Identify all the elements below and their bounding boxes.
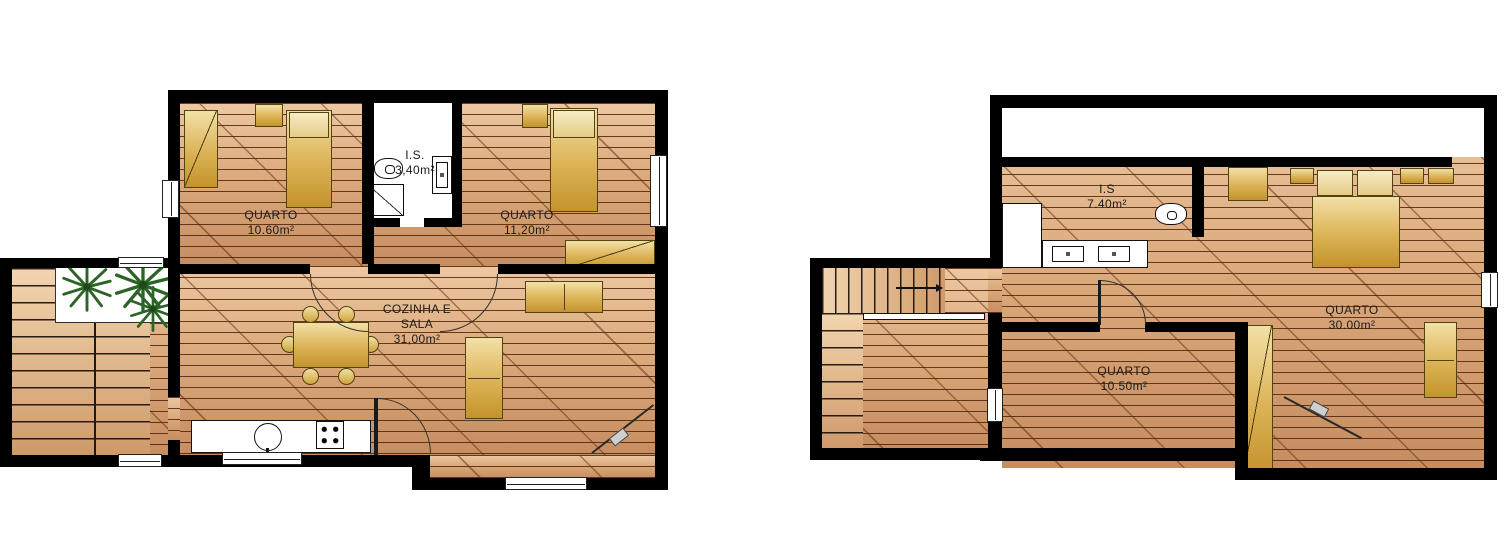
window [987, 388, 1003, 422]
wc-icon [1155, 203, 1187, 225]
extension-floor [420, 455, 656, 478]
window [162, 180, 179, 218]
pillow-icon [1317, 170, 1353, 196]
wall [368, 264, 440, 274]
room-area: 30.00m² [1325, 318, 1378, 333]
wall [810, 258, 990, 268]
sofa-icon [1424, 322, 1457, 398]
room-area: 10.60m² [244, 223, 297, 238]
room-name: QUARTO [244, 208, 297, 223]
cabinet-icon [1428, 168, 1454, 184]
wall [374, 218, 400, 227]
room-label-quarto-small: QUARTO 10.50m² [1097, 364, 1150, 394]
room-area: 11,20m² [500, 223, 553, 238]
washbasin-icon [1098, 246, 1130, 262]
wall [1192, 167, 1204, 237]
room-name-line2: SALA [383, 317, 451, 332]
window [1481, 272, 1498, 308]
wall [980, 448, 1248, 461]
wall [1235, 468, 1497, 480]
wall [810, 258, 822, 460]
arrow-right-icon [936, 284, 943, 292]
door-leaf [1098, 280, 1101, 325]
shelf-icon [255, 104, 283, 127]
room-name: QUARTO [500, 208, 553, 223]
cabinet-icon [1228, 167, 1268, 201]
pillow-icon [289, 112, 329, 138]
chair-icon [338, 368, 355, 385]
floor-plan-drawing: QUARTO 10.60m² I.S. 3,40m² QUARTO 11,20m… [0, 0, 1507, 557]
wall [452, 103, 462, 227]
wall [655, 90, 668, 490]
room-label-is-ground: I.S. 3,40m² [395, 148, 435, 178]
wall [990, 322, 1100, 332]
wall [988, 313, 1002, 460]
washbasin-icon [436, 162, 448, 188]
room-area: 3,40m² [395, 163, 435, 178]
window [222, 452, 302, 465]
window [650, 155, 667, 227]
deck-passage-floor [168, 397, 180, 440]
chair-icon [302, 306, 319, 323]
void-strip [1002, 108, 1485, 157]
window [505, 477, 587, 490]
round-sink-icon [254, 423, 282, 451]
room-label-living: COZINHA E SALA 31,00m² [383, 302, 451, 347]
stairs-lower-flight [822, 313, 863, 448]
room-label-quarto1: QUARTO 10.60m² [244, 208, 297, 238]
room-area: 7.40m² [1087, 197, 1127, 212]
window [118, 454, 162, 467]
room-name: QUARTO [1097, 364, 1150, 379]
room-area: 31,00m² [383, 332, 451, 347]
wall [168, 90, 180, 397]
chair-icon [302, 368, 319, 385]
sofa-icon [465, 337, 503, 419]
room-label-is-upper: I.S 7.40m² [1087, 182, 1127, 212]
wall [990, 95, 1002, 268]
pillow-icon [553, 110, 595, 138]
pillow-icon [1357, 170, 1393, 196]
stairs-railing [863, 313, 985, 320]
wall [424, 218, 452, 227]
window [118, 257, 164, 268]
wall [498, 264, 656, 274]
nightstand-icon [1400, 168, 1424, 184]
wall [990, 95, 1497, 108]
wall [0, 258, 12, 467]
room-name: QUARTO [1325, 303, 1378, 318]
washbasin-icon [1052, 246, 1084, 262]
room-area: 10.50m² [1097, 379, 1150, 394]
sofa-icon [525, 281, 603, 313]
wall [362, 103, 374, 264]
room-label-quarto-main: QUARTO 30.00m² [1325, 303, 1378, 333]
room-name: I.S. [395, 148, 435, 163]
stairs-upper-flight [822, 268, 945, 313]
nightstand-icon [1290, 168, 1314, 184]
wall [1145, 322, 1245, 332]
shelf-icon [522, 104, 548, 128]
stairs-direction-line [896, 287, 936, 289]
wall [168, 90, 668, 103]
wall [990, 157, 1452, 167]
door-leaf [374, 398, 378, 455]
wall [180, 264, 310, 274]
room-name-line1: COZINHA E [383, 302, 451, 317]
stairs-passage-floor [988, 268, 1002, 313]
room-label-quarto2: QUARTO 11,20m² [500, 208, 553, 238]
double-bed-icon [1312, 196, 1400, 268]
wardrobe-icon [184, 110, 218, 188]
four-burner-stove-icon [316, 421, 344, 449]
wall [810, 448, 996, 460]
shower-closet [1002, 203, 1042, 268]
room-name: I.S [1087, 182, 1127, 197]
wall [0, 455, 430, 467]
